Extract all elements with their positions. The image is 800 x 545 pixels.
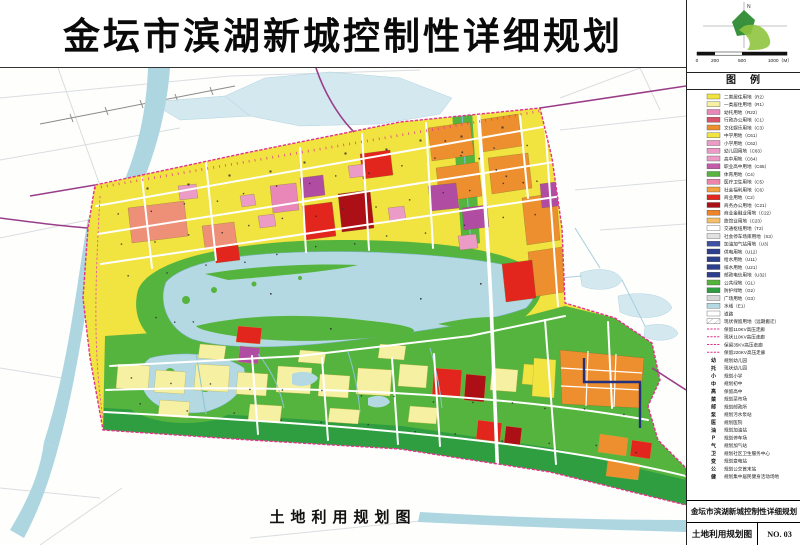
svg-text:泵: 泵 (711, 411, 717, 418)
legend-item: 幼规划幼儿园 (711, 357, 747, 364)
svg-text:小学用地（C62）: 小学用地（C62） (724, 140, 760, 147)
svg-text:行政办公用地（C1）: 行政办公用地（C1） (724, 117, 767, 124)
legend-item: 泵规划污水泵站 (711, 411, 752, 418)
svg-text:现状幼儿园: 现状幼儿园 (724, 365, 747, 372)
legend-item: 健规划集中居民健身活动场地 (711, 473, 780, 480)
legend-item: 托现状幼儿园 (711, 365, 747, 372)
svg-text:排水用地（U21）: 排水用地（U21） (724, 264, 760, 271)
legend-panel: N 02005001000（M） 图 例 二类居住用地（R2）一类居住用地（R1… (686, 0, 800, 545)
legend-item: 职业高中用地（C65） (707, 163, 769, 170)
scale-label: 1000（M） (768, 58, 792, 64)
legend-item: 一类居住用地（R1） (707, 101, 767, 108)
legend-item: 文化娱乐用地（C3） (707, 124, 767, 131)
legend-item: 体育用地（C4） (707, 171, 757, 178)
svg-text:规划医院: 规划医院 (724, 419, 743, 426)
legend-item: 道路 (707, 310, 734, 317)
legend-item: 排水用地（U21） (707, 264, 760, 271)
legend-item: 中规划初中 (711, 380, 743, 387)
legend-item: 行政办公用地（C1） (707, 117, 767, 124)
svg-text:现状保留用地（远期搬迁）: 现状保留用地（远期搬迁） (724, 318, 779, 325)
scale-label: 500 (738, 58, 746, 64)
svg-text:商业用地（C2）: 商业用地（C2） (724, 194, 757, 201)
svg-text:公共绿地（G1）: 公共绿地（G1） (724, 279, 758, 286)
title-block-project: 金坛市滨湖新城控制性详细规划 (687, 501, 800, 523)
svg-text:职业高中用地（C65）: 职业高中用地（C65） (724, 163, 769, 170)
legend-item: 变规划变电站 (711, 458, 747, 465)
svg-text:托: 托 (711, 365, 716, 372)
legend-item: 小学用地（C62） (707, 140, 760, 147)
svg-text:小: 小 (711, 373, 716, 380)
svg-text:商业金融业用地（C22）: 商业金融业用地（C22） (724, 210, 774, 217)
svg-text:现状110KV高压走廊: 现状110KV高压走廊 (724, 334, 765, 341)
svg-text:二类居住用地（R2）: 二类居住用地（R2） (724, 93, 767, 100)
svg-text:邮: 邮 (711, 404, 716, 411)
legend-item: 给水用地（U11） (707, 256, 760, 263)
svg-text:幼托用地（R22）: 幼托用地（R22） (724, 109, 760, 116)
legend-item: 卫规划社区卫生服务中心 (711, 450, 770, 457)
legend-item: 邮规划邮政所 (711, 403, 747, 410)
svg-text:规划污水泵站: 规划污水泵站 (724, 411, 752, 418)
legend-item: 供电用地（U12） (707, 248, 760, 255)
svg-text:保留35KV高压走廊: 保留35KV高压走廊 (724, 341, 763, 348)
map-area: 土地利用规划图 (0, 67, 686, 545)
land-use-map (0, 68, 686, 545)
svg-text:交通枢纽用地（T2）: 交通枢纽用地（T2） (724, 225, 766, 232)
svg-text:P: P (712, 436, 716, 442)
svg-text:规划初中: 规划初中 (724, 380, 743, 387)
title-block-sheet-number: NO. 03 (758, 523, 800, 545)
svg-text:气: 气 (710, 442, 716, 449)
legend-list: 二类居住用地（R2）一类居住用地（R1）幼托用地（R22）行政办公用地（C1）文… (687, 91, 800, 483)
svg-text:规划菜市场: 规划菜市场 (724, 396, 747, 403)
svg-text:水域（E1）: 水域（E1） (724, 303, 748, 309)
svg-text:规划变电站: 规划变电站 (724, 458, 747, 465)
north-arrow-icon: N (687, 0, 800, 50)
legend-item: 油规划加油站 (711, 427, 747, 434)
svg-text:规划加油站: 规划加油站 (724, 427, 747, 434)
svg-text:规划加气站: 规划加气站 (724, 442, 747, 449)
legend-item: 公规划公交首末站 (711, 465, 757, 472)
legend-item: 社会停车场库用地（S3） (707, 233, 776, 240)
svg-text:健: 健 (711, 473, 717, 480)
svg-text:卫: 卫 (711, 450, 716, 457)
compass-light-leaf (739, 25, 770, 50)
legend-item: 幼托用地（R22） (707, 109, 760, 116)
title-block: 金坛市滨湖新城控制性详细规划 土地利用规划图 NO. 03 (687, 500, 800, 545)
svg-text:中: 中 (711, 380, 716, 387)
svg-text:医疗卫生用地（C5）: 医疗卫生用地（C5） (724, 179, 767, 186)
legend-item: 医规划医院 (711, 419, 743, 426)
svg-text:广场用地（G3）: 广场用地（G3） (724, 295, 758, 302)
svg-text:社会福利用地（C6）: 社会福利用地（C6） (724, 186, 767, 193)
legend-item: 邮政电信用地（U32） (707, 272, 769, 279)
legend-item: 二类居住用地（R2） (707, 93, 767, 100)
east-orange-grid (560, 350, 644, 408)
legend-item: 加油加气站用地（U3） (707, 241, 771, 248)
legend-item: 商务办公用地（C21） (707, 202, 769, 209)
north-label: N (747, 4, 751, 10)
svg-text:保留高中: 保留高中 (724, 388, 743, 395)
svg-text:医: 医 (711, 419, 716, 426)
svg-text:道路: 道路 (724, 310, 734, 317)
svg-text:油: 油 (711, 427, 716, 434)
svg-text:保留220KV高压走廊: 保留220KV高压走廊 (724, 349, 766, 356)
svg-text:体育用地（C4）: 体育用地（C4） (724, 171, 757, 178)
legend-item: 中学用地（C61） (707, 132, 760, 139)
legend-item: 广场用地（G3） (707, 295, 758, 302)
svg-text:中学用地（C61）: 中学用地（C61） (724, 132, 760, 139)
svg-text:保留110KV高压走廊: 保留110KV高压走廊 (724, 326, 765, 333)
svg-text:一类居住用地（R1）: 一类居住用地（R1） (724, 101, 767, 108)
svg-text:公: 公 (711, 467, 716, 473)
svg-text:高: 高 (711, 388, 716, 395)
svg-text:变: 变 (711, 458, 716, 465)
legend-item: 高中用地（C64） (707, 155, 760, 162)
page-title: 金坛市滨湖新城控制性详细规划 (0, 6, 686, 60)
svg-text:规划集中居民健身活动场地: 规划集中居民健身活动场地 (724, 473, 780, 480)
legend-item: 高保留高中 (711, 388, 743, 395)
map-caption: 土地利用规划图 (0, 506, 686, 527)
svg-text:规划小学: 规划小学 (724, 372, 743, 379)
legend-header: 图 例 (687, 72, 800, 90)
svg-text:加油加气站用地（U3）: 加油加气站用地（U3） (724, 241, 771, 248)
legend-item: 商业用地（C2） (707, 194, 757, 201)
legend-item: 保留220KV高压走廊 (707, 349, 766, 356)
legend-item: 小规划小学 (711, 372, 743, 379)
svg-text:幼: 幼 (711, 357, 716, 364)
svg-text:给水用地（U11）: 给水用地（U11） (724, 256, 760, 263)
legend-item: 商业金融业用地（C22） (707, 210, 774, 217)
svg-text:邮政电信用地（U32）: 邮政电信用地（U32） (724, 272, 769, 279)
svg-text:幼儿园用地（C63）: 幼儿园用地（C63） (724, 148, 765, 155)
legend-item: 交通枢纽用地（T2） (707, 225, 766, 232)
scale-label: 0 (696, 58, 699, 64)
scale-label: 200 (711, 58, 719, 64)
planning-map-sheet: 金坛市滨湖新城控制性详细规划 (0, 0, 800, 545)
legend-item: 医疗卫生用地（C5） (707, 179, 767, 186)
svg-text:规划幼儿园: 规划幼儿园 (724, 357, 747, 364)
svg-text:旅馆业用地（C23）: 旅馆业用地（C23） (724, 217, 765, 224)
svg-text:规划公交首末站: 规划公交首末站 (724, 465, 757, 472)
legend-item: 保留35KV高压走廊 (707, 341, 763, 348)
svg-text:供电用地（U12）: 供电用地（U12） (724, 248, 760, 255)
legend-item: 旅馆业用地（C23） (707, 217, 765, 224)
svg-text:文化娱乐用地（C3）: 文化娱乐用地（C3） (724, 124, 767, 131)
svg-text:社会停车场库用地（S3）: 社会停车场库用地（S3） (724, 233, 776, 240)
svg-text:规划停车场: 规划停车场 (724, 434, 747, 441)
legend-item: 现状保留用地（远期搬迁） (707, 318, 779, 325)
legend-item: 水域（E1） (707, 303, 748, 309)
legend-item: 幼儿园用地（C63） (707, 148, 765, 155)
svg-text:规划邮政所: 规划邮政所 (724, 403, 747, 410)
svg-text:高中用地（C64）: 高中用地（C64） (724, 155, 760, 162)
legend-item: 菜规划菜市场 (710, 396, 747, 403)
legend-item: 气规划加气站 (710, 442, 747, 449)
svg-text:规划社区卫生服务中心: 规划社区卫生服务中心 (724, 450, 770, 457)
title-block-drawing-name: 土地利用规划图 (687, 523, 758, 545)
svg-text:菜: 菜 (710, 396, 716, 403)
legend-item: 公共绿地（G1） (707, 279, 758, 286)
svg-text:防护绿地（G2）: 防护绿地（G2） (724, 287, 758, 294)
legend-item: 防护绿地（G2） (707, 287, 758, 294)
svg-text:商务办公用地（C21）: 商务办公用地（C21） (724, 202, 769, 209)
legend-item: 社会福利用地（C6） (707, 186, 767, 193)
legend-item: P规划停车场 (712, 434, 748, 441)
legend-item: 保留110KV高压走廊 (707, 326, 765, 333)
scale-bar: 02005001000（M） (687, 50, 800, 68)
legend-item: 现状110KV高压走廊 (707, 334, 765, 341)
